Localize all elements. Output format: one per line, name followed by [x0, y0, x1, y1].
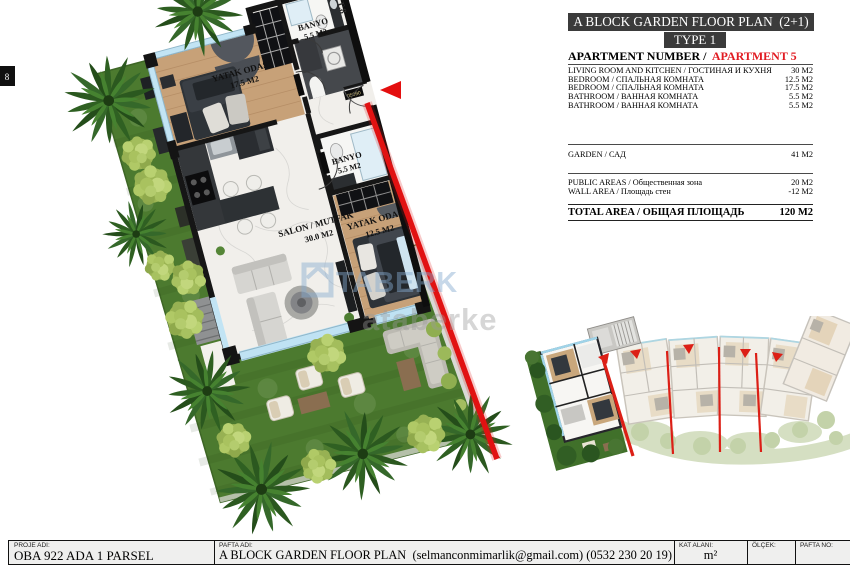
svg-text:8: 8: [5, 72, 10, 82]
svg-text:ataberke: ataberke: [362, 302, 498, 337]
svg-text:TABERK: TABERK: [336, 267, 458, 299]
